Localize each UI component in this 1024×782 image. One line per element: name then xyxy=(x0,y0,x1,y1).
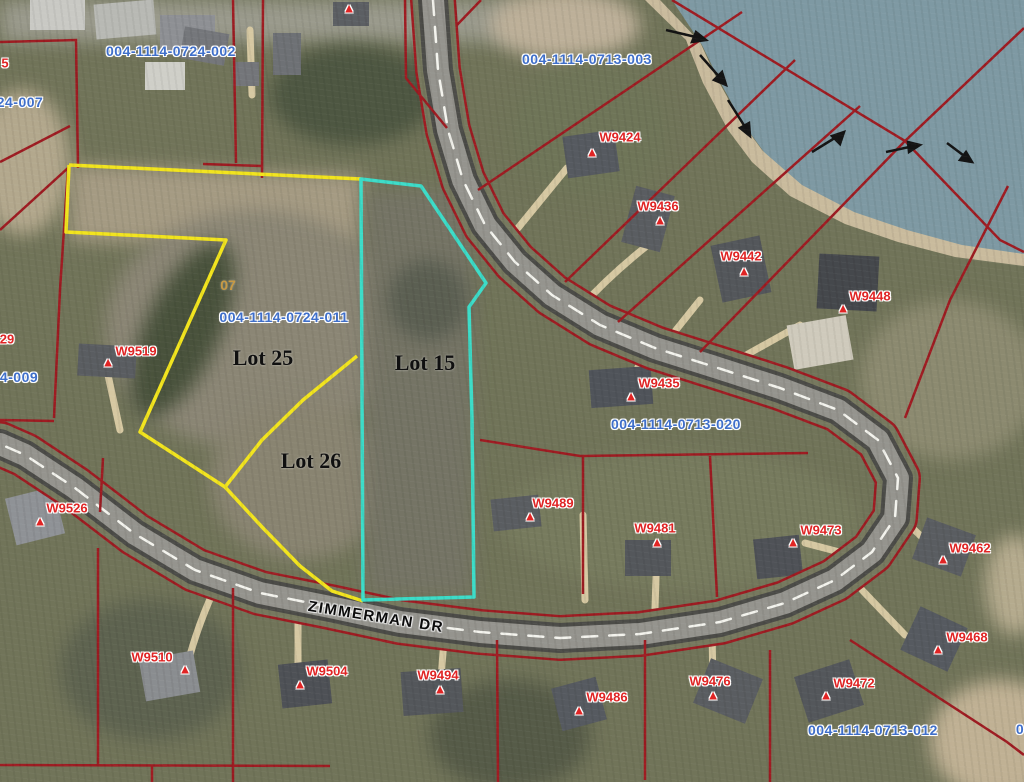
marker-triangle-icon: ▲ xyxy=(524,510,537,523)
marker-triangle-icon: ▲ xyxy=(625,390,638,403)
marker-triangle-icon: ▲ xyxy=(586,146,599,159)
parcel-map: ZIMMERMAN DR 004-1114-0724-002004-1114-0… xyxy=(0,0,1024,782)
marker-triangle-icon: ▲ xyxy=(654,214,667,227)
marker-triangle-icon: ▲ xyxy=(573,704,586,717)
marker-triangle-icon: ▲ xyxy=(707,689,720,702)
address-marker-label: W9424 xyxy=(599,130,640,145)
marker-triangle-icon: ▲ xyxy=(434,683,447,696)
address-marker-label: W9486 xyxy=(586,690,627,705)
lot-label: Lot 25 xyxy=(233,345,294,371)
marker-triangle-icon: ▲ xyxy=(837,302,850,315)
address-marker-label: W9472 xyxy=(833,676,874,691)
parcel-id-label: 004-1114-0713-020 xyxy=(611,416,741,432)
address-marker-label: W9489 xyxy=(532,496,573,511)
marker-triangle-icon: ▲ xyxy=(651,536,664,549)
marker-triangle-icon: ▲ xyxy=(179,663,192,676)
marker-triangle-icon: ▲ xyxy=(932,643,945,656)
address-marker-label: W9481 xyxy=(634,521,675,536)
lot-boundary-cyan xyxy=(361,179,486,600)
address-marker-label: W9468 xyxy=(946,630,987,645)
address-marker-label: W9442 xyxy=(720,249,761,264)
address-marker-label: W9476 xyxy=(689,674,730,689)
parcel-id-label: 004-1114-0713-012 xyxy=(808,722,938,738)
address-marker-label: W9462 xyxy=(949,541,990,556)
address-marker-label: W9448 xyxy=(849,289,890,304)
marker-triangle-icon: ▲ xyxy=(102,356,115,369)
edge-fragment-label: 24-007 xyxy=(0,94,43,110)
edge-fragment-label: 29 xyxy=(0,332,14,347)
edge-fragment-label: 4-009 xyxy=(0,369,38,385)
address-marker-label: W9473 xyxy=(800,523,841,538)
parcel-id-label: 004-1114-0724-011 xyxy=(219,309,348,325)
parcel-id-label: 004-1114-0724-002 xyxy=(106,43,236,59)
address-marker-label: W9436 xyxy=(637,199,678,214)
address-marker-label: W9519 xyxy=(115,344,156,359)
marker-triangle-icon: ▲ xyxy=(820,689,833,702)
address-marker-label: W9494 xyxy=(417,668,458,683)
address-marker-label: W9510 xyxy=(131,650,172,665)
parcel-id-label: 004-1114-0713-003 xyxy=(522,51,652,67)
lot-label: Lot 15 xyxy=(395,350,456,376)
marker-triangle-icon: ▲ xyxy=(787,536,800,549)
edge-fragment-label: 5 xyxy=(1,56,8,71)
marker-triangle-icon: ▲ xyxy=(34,515,47,528)
marker-triangle-icon: ▲ xyxy=(343,2,356,15)
map-graphics xyxy=(0,0,1024,782)
address-marker-label: W9435 xyxy=(638,376,679,391)
marker-triangle-icon: ▲ xyxy=(937,553,950,566)
section-label: 07 xyxy=(220,277,236,293)
address-marker-label: W9504 xyxy=(306,664,347,679)
marker-triangle-icon: ▲ xyxy=(738,265,751,278)
edge-fragment-label: 0 xyxy=(1016,721,1024,737)
address-marker-label: W9526 xyxy=(46,501,87,516)
marker-triangle-icon: ▲ xyxy=(294,678,307,691)
lot-label: Lot 26 xyxy=(281,448,342,474)
